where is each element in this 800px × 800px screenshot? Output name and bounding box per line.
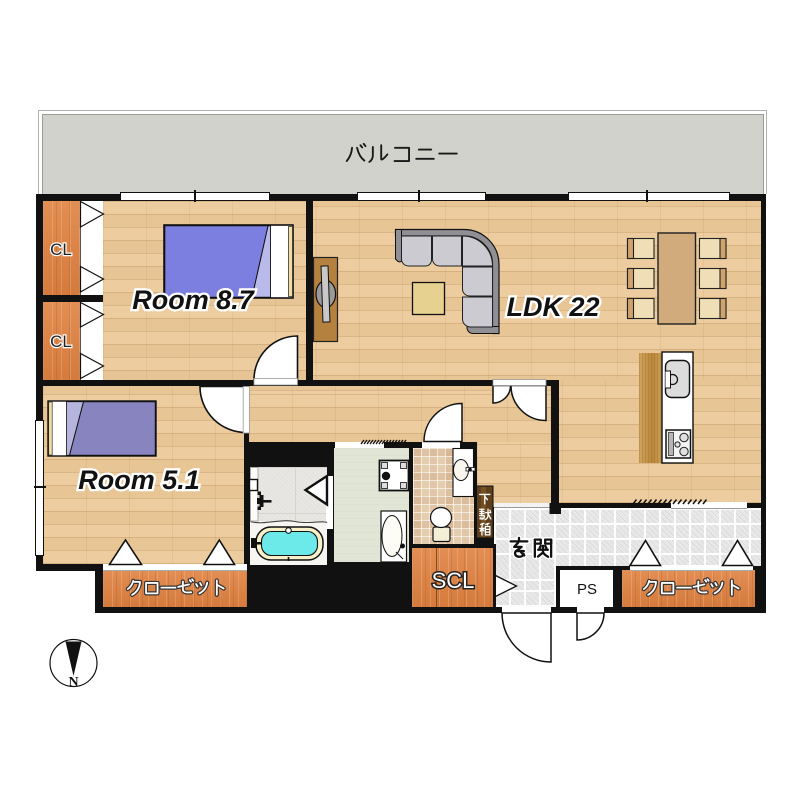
svg-text:SCL: SCL [432, 568, 475, 593]
svg-text:Room 8.7: Room 8.7 [132, 285, 256, 315]
svg-text:CL: CL [50, 332, 72, 351]
svg-text:CL: CL [50, 240, 72, 259]
svg-text:N: N [68, 675, 78, 690]
svg-text:Room 5.1: Room 5.1 [78, 465, 200, 495]
svg-text:LDK 22: LDK 22 [506, 292, 599, 322]
svg-text:PS: PS [577, 581, 597, 598]
